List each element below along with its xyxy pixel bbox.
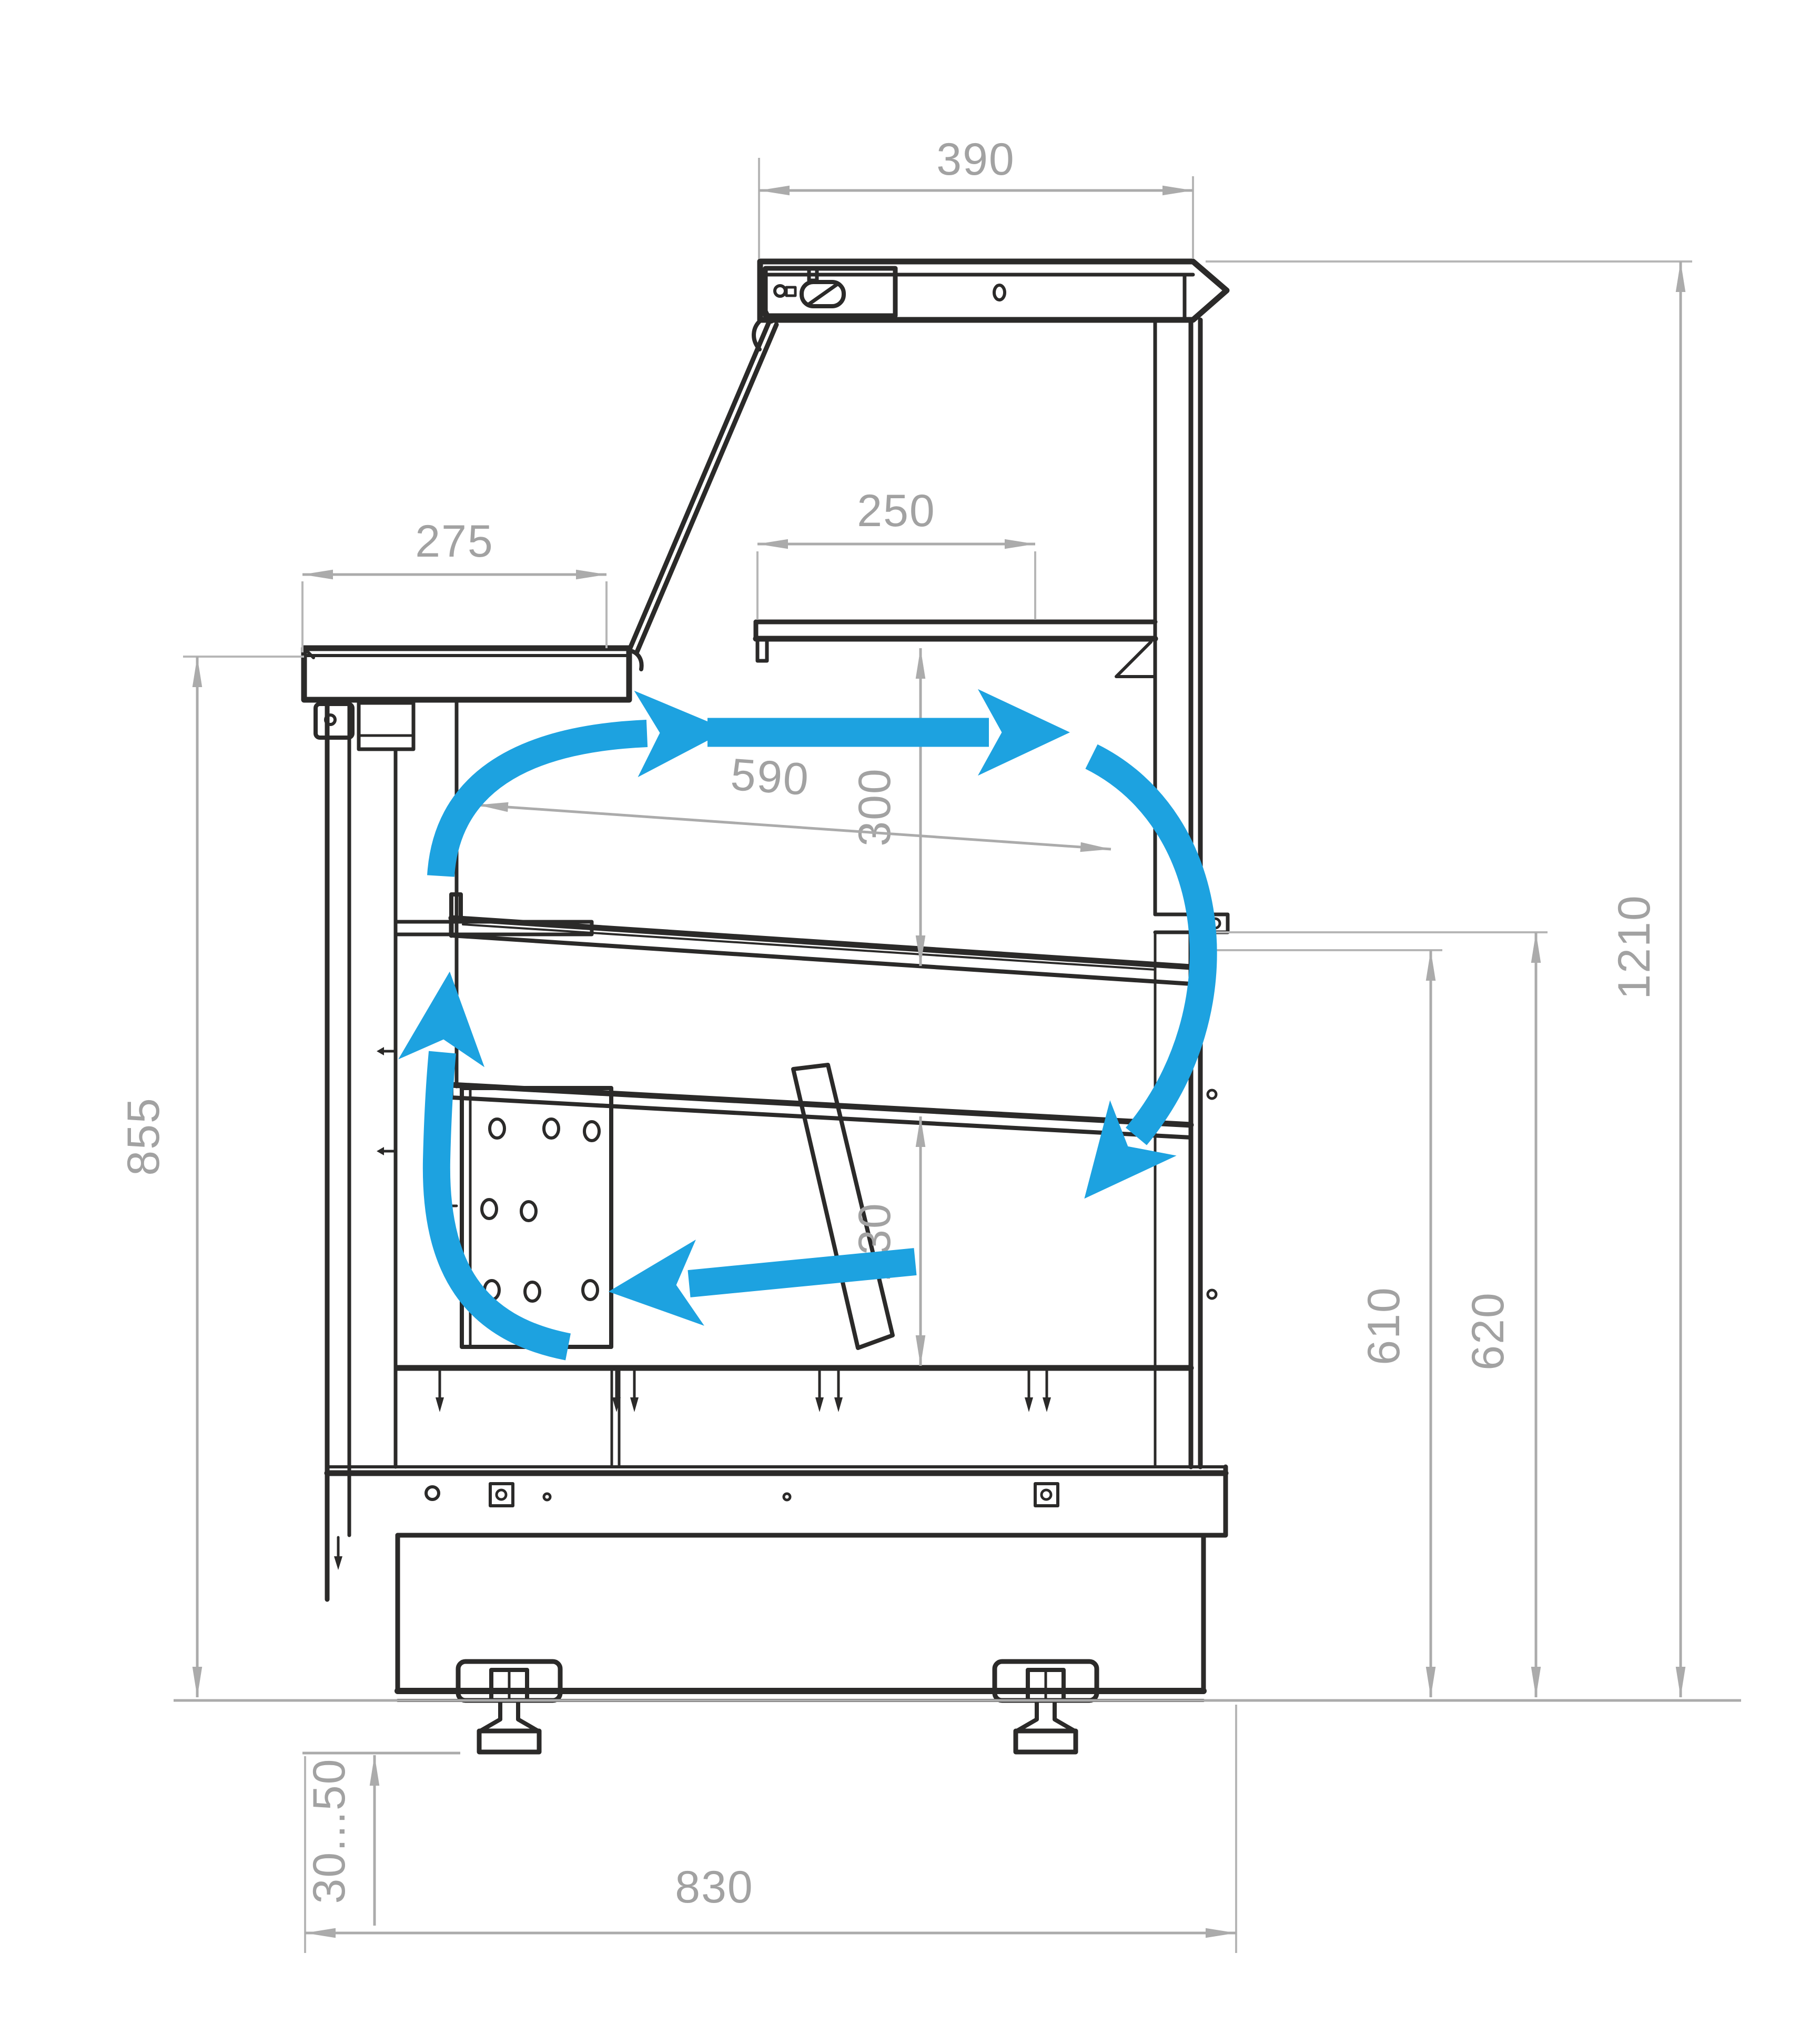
counter-bracket-screw-icon (326, 715, 335, 724)
perforation-holes-icon (482, 1119, 599, 1301)
glass-pane-inner (637, 325, 776, 652)
shelf-rear-bracket (1116, 642, 1155, 677)
dim-label-620: 620 (1463, 1292, 1513, 1371)
dim-label-830: 830 (675, 1862, 754, 1912)
airflow-arrows (437, 732, 1204, 1347)
dim-label-275: 275 (415, 516, 494, 567)
shelf (756, 622, 1155, 677)
foot-right-stem (1017, 1700, 1075, 1731)
dim-label-610: 610 (1359, 1286, 1409, 1365)
drain-pin-tips (334, 1397, 1051, 1570)
base-frame (327, 1369, 1226, 1700)
canopy (760, 261, 1227, 320)
dim-deck-to-well: 230 (850, 1116, 921, 1366)
base-fastener-left-hole (497, 1490, 506, 1499)
foot-left-stem (480, 1700, 538, 1731)
plinth-sides (398, 1535, 1204, 1691)
display-deck (451, 894, 1191, 984)
dim-overall-height: 1210 (1206, 261, 1692, 1697)
dim-overall-depth: 830 (305, 1705, 1236, 1953)
dim-label-590: 590 (729, 749, 811, 805)
canopy-screw-icon (775, 286, 785, 296)
drain-pins (338, 1371, 1047, 1556)
drawing-canvas: 390 275 250 300 590 230 (0, 0, 1820, 2034)
dim-label-855: 855 (118, 1097, 169, 1176)
dim-label-250: 250 (857, 486, 936, 536)
dim-rear-inner-height: 610 (1205, 950, 1442, 1697)
dim-deck-depth: 590 (478, 749, 1111, 849)
dimension-annotations: 390 275 250 300 590 230 (118, 134, 1741, 1953)
foot-left (458, 1662, 560, 1752)
deck-liner-line (463, 924, 1155, 970)
dim-label-390: 390 (936, 134, 1015, 185)
dim-counter-top-depth: 275 (302, 516, 606, 652)
base-hole-1 (426, 1487, 439, 1499)
dim-label-30-50: 30...50 (304, 1758, 355, 1904)
foot-right-pad (1016, 1731, 1076, 1752)
counter-bracket-right (359, 703, 413, 749)
base-hole-3 (784, 1494, 790, 1500)
dim-shelf-to-deck: 300 (850, 648, 921, 966)
airflow-arc-right-icon (1091, 757, 1204, 1136)
well-floor (334, 1368, 1191, 1570)
foot-right (995, 1662, 1097, 1752)
cabinet-structure (304, 261, 1228, 1752)
plenum-panel (451, 1085, 1191, 1137)
dim-label-1210: 1210 (1609, 894, 1660, 999)
base-fastener-right (1035, 1484, 1058, 1506)
base-hole-2 (544, 1494, 550, 1500)
base-fastener-right-hole (1042, 1490, 1051, 1499)
glass-pane-outer (630, 322, 769, 649)
foot-left-pad (479, 1731, 539, 1752)
dim-shelf-depth: 250 (757, 486, 1035, 620)
canopy-clip (786, 287, 795, 296)
shelf-front-lip (757, 639, 767, 661)
canopy-hole-icon (994, 285, 1005, 300)
dim-canopy-width: 390 (759, 134, 1193, 259)
display-case-section-drawing: 390 275 250 300 590 230 (0, 0, 1820, 2034)
lamp-tube-diagonal (809, 284, 837, 304)
dim-front-counter-height: 855 (118, 657, 304, 1697)
glass-front (629, 309, 776, 669)
rear-screw-upper-icon (1208, 1090, 1216, 1099)
rear-screw-lower-icon (1208, 1290, 1216, 1298)
base-fastener-left (490, 1484, 513, 1506)
airflow-arc-topleft-icon (441, 733, 647, 876)
base-band (398, 1467, 1226, 1535)
counter-top (304, 648, 629, 700)
dim-foot-adjustment: 30...50 (304, 1755, 375, 1926)
